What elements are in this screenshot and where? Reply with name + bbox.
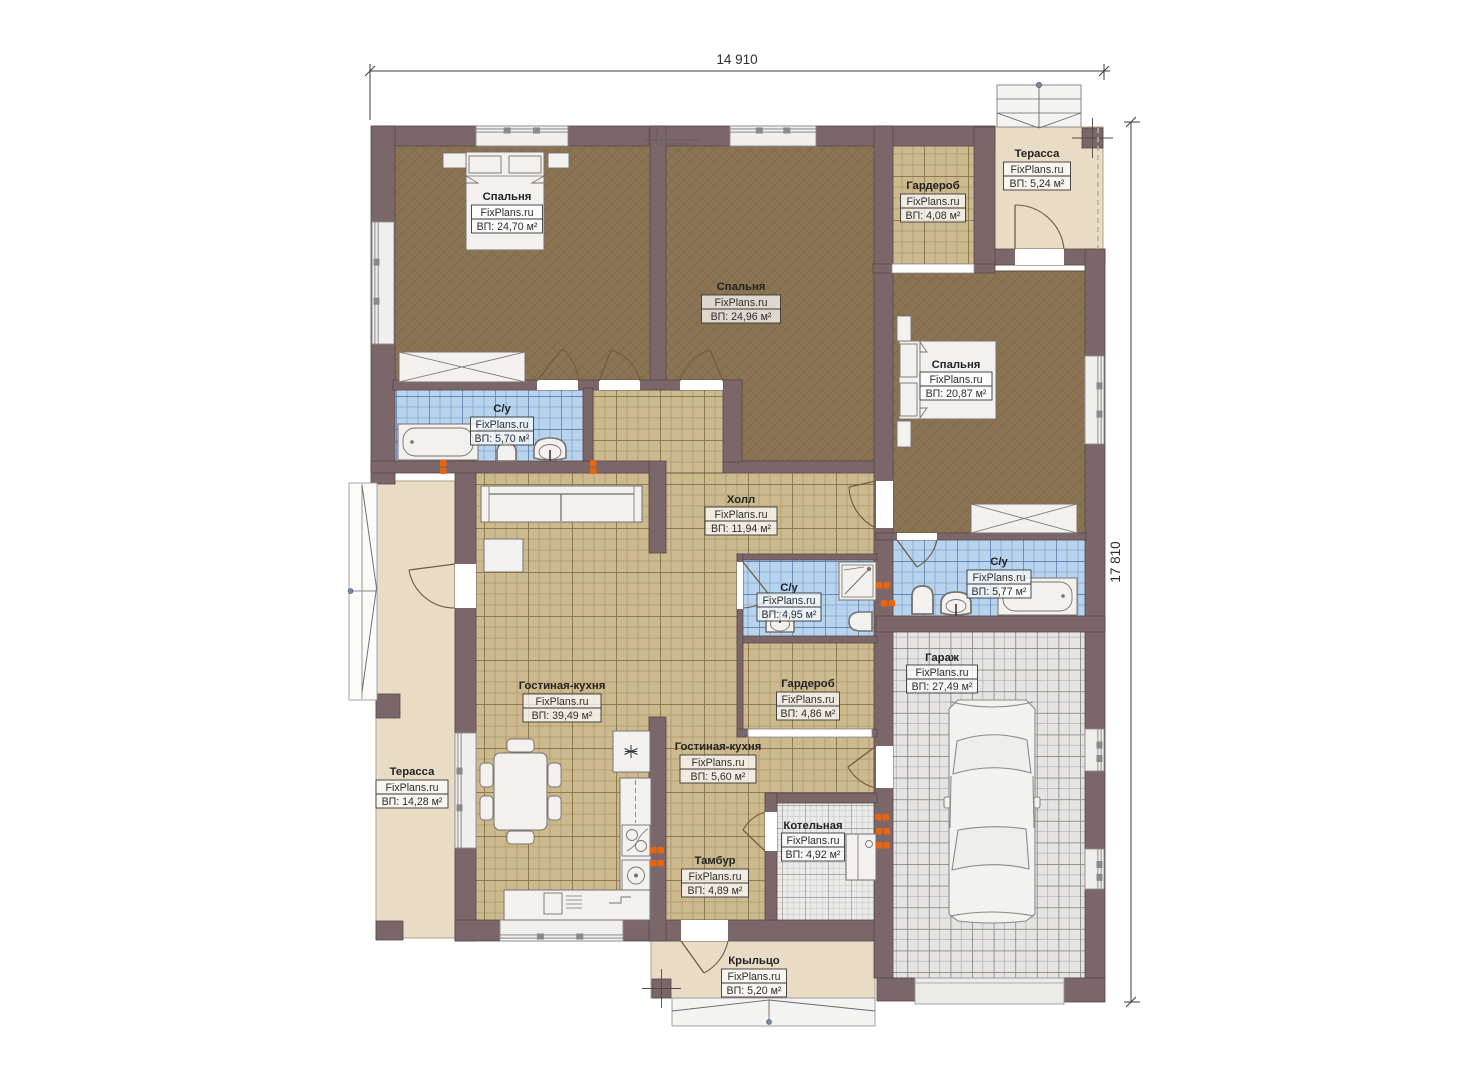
svg-text:Спальня: Спальня <box>932 359 981 371</box>
svg-text:ВП: 5,70 м²: ВП: 5,70 м² <box>475 433 530 445</box>
svg-text:14 910: 14 910 <box>716 52 757 67</box>
svg-text:ВП: 39,49 м²: ВП: 39,49 м² <box>532 710 593 722</box>
svg-text:ВП: 4,95 м²: ВП: 4,95 м² <box>762 609 817 621</box>
svg-text:Спальня: Спальня <box>717 281 766 293</box>
svg-text:Холл: Холл <box>727 494 755 506</box>
svg-text:FixPlans.ru: FixPlans.ru <box>916 667 969 679</box>
svg-text:ВП: 24,96 м²: ВП: 24,96 м² <box>711 311 772 323</box>
svg-text:FixPlans.ru: FixPlans.ru <box>1011 164 1064 176</box>
svg-text:17 810: 17 810 <box>1108 541 1123 582</box>
svg-text:ВП: 5,60 м²: ВП: 5,60 м² <box>691 771 746 783</box>
svg-text:Гардероб: Гардероб <box>906 180 959 192</box>
svg-text:ВП: 5,77 м²: ВП: 5,77 м² <box>972 586 1027 598</box>
svg-text:Спальня: Спальня <box>483 191 532 203</box>
svg-text:FixPlans.ru: FixPlans.ru <box>763 595 816 607</box>
svg-text:FixPlans.ru: FixPlans.ru <box>689 871 742 883</box>
svg-text:FixPlans.ru: FixPlans.ru <box>787 835 840 847</box>
svg-text:ВП: 11,94 м²: ВП: 11,94 м² <box>711 523 772 535</box>
svg-text:Терасса: Терасса <box>390 766 436 778</box>
svg-text:FixPlans.ru: FixPlans.ru <box>907 196 960 208</box>
svg-text:FixPlans.ru: FixPlans.ru <box>782 694 835 706</box>
svg-text:Крыльцо: Крыльцо <box>728 955 780 967</box>
svg-text:ВП: 27,49 м²: ВП: 27,49 м² <box>912 681 973 693</box>
svg-text:ВП: 5,20 м²: ВП: 5,20 м² <box>727 985 782 997</box>
svg-text:Гостиная-кухня: Гостиная-кухня <box>675 741 762 753</box>
svg-text:Гараж: Гараж <box>925 652 960 664</box>
svg-text:ВП: 14,28 м²: ВП: 14,28 м² <box>382 796 443 808</box>
svg-text:FixPlans.ru: FixPlans.ru <box>930 374 983 386</box>
svg-text:ВП: 5,24 м²: ВП: 5,24 м² <box>1010 178 1065 190</box>
svg-text:ВП: 4,86 м²: ВП: 4,86 м² <box>781 708 836 720</box>
svg-text:ВП: 20,87 м²: ВП: 20,87 м² <box>926 388 987 400</box>
svg-text:С/у: С/у <box>493 403 511 415</box>
svg-text:Гостиная-кухня: Гостиная-кухня <box>519 680 606 692</box>
svg-text:С/у: С/у <box>780 582 798 594</box>
svg-text:FixPlans.ru: FixPlans.ru <box>715 297 768 309</box>
svg-text:FixPlans.ru: FixPlans.ru <box>481 207 534 219</box>
svg-text:FixPlans.ru: FixPlans.ru <box>536 696 589 708</box>
svg-text:FixPlans.ru: FixPlans.ru <box>715 509 768 521</box>
svg-text:ВП: 4,92 м²: ВП: 4,92 м² <box>786 849 841 861</box>
svg-text:ВП: 4,89 м²: ВП: 4,89 м² <box>688 885 743 897</box>
svg-text:Терасса: Терасса <box>1015 148 1061 160</box>
svg-text:FixPlans.ru: FixPlans.ru <box>973 572 1026 584</box>
svg-text:ВП: 24,70 м²: ВП: 24,70 м² <box>477 221 538 233</box>
svg-text:FixPlans.ru: FixPlans.ru <box>386 782 439 794</box>
svg-text:С/у: С/у <box>990 556 1008 568</box>
svg-text:ВП: 4,08 м²: ВП: 4,08 м² <box>906 210 961 222</box>
svg-text:FixPlans.ru: FixPlans.ru <box>692 757 745 769</box>
svg-text:Гардероб: Гардероб <box>781 678 834 690</box>
svg-text:FixPlans.ru: FixPlans.ru <box>728 971 781 983</box>
svg-text:Тамбур: Тамбур <box>695 855 736 867</box>
svg-text:Котельная: Котельная <box>783 820 842 832</box>
svg-text:FixPlans.ru: FixPlans.ru <box>476 419 529 431</box>
